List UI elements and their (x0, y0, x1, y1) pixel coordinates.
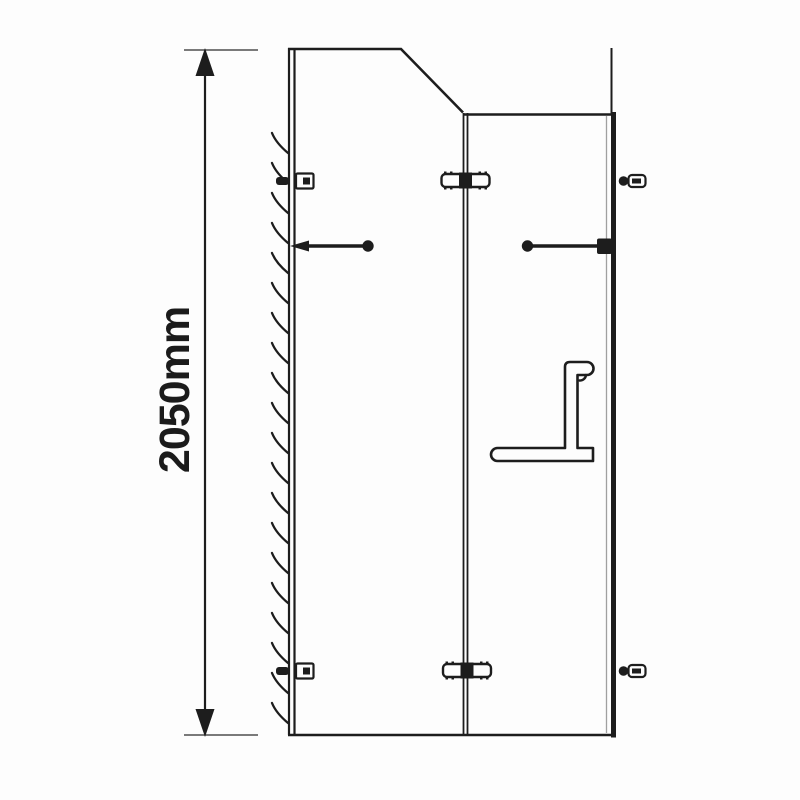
panel-clamp-bottom (619, 665, 646, 677)
wall-with-hatching (272, 48, 295, 735)
glass-clamp-top (442, 172, 490, 190)
dimension-arrow-down-icon (196, 709, 215, 737)
panel-clamp-top (619, 175, 646, 187)
support-bar-panel-mount (597, 239, 612, 255)
dimension-label: 2050mm (100, 315, 250, 465)
support-bar-ball-end (362, 240, 373, 251)
door-panel (463, 113, 612, 735)
side-panel-edge (607, 48, 614, 738)
fixed-panel-with-sloped-top (288, 49, 463, 113)
fixed-panel-top-edge (288, 49, 463, 113)
support-bar-right (522, 239, 612, 255)
support-bar-left (290, 240, 374, 251)
glass-clamp-bottom (443, 662, 491, 680)
wall-hatching (272, 133, 288, 723)
dimension-arrow-up-icon (196, 48, 215, 76)
technical-drawing: 2050mm (0, 0, 800, 800)
towel-bar-handle (491, 362, 593, 461)
handle-outline (491, 362, 593, 461)
